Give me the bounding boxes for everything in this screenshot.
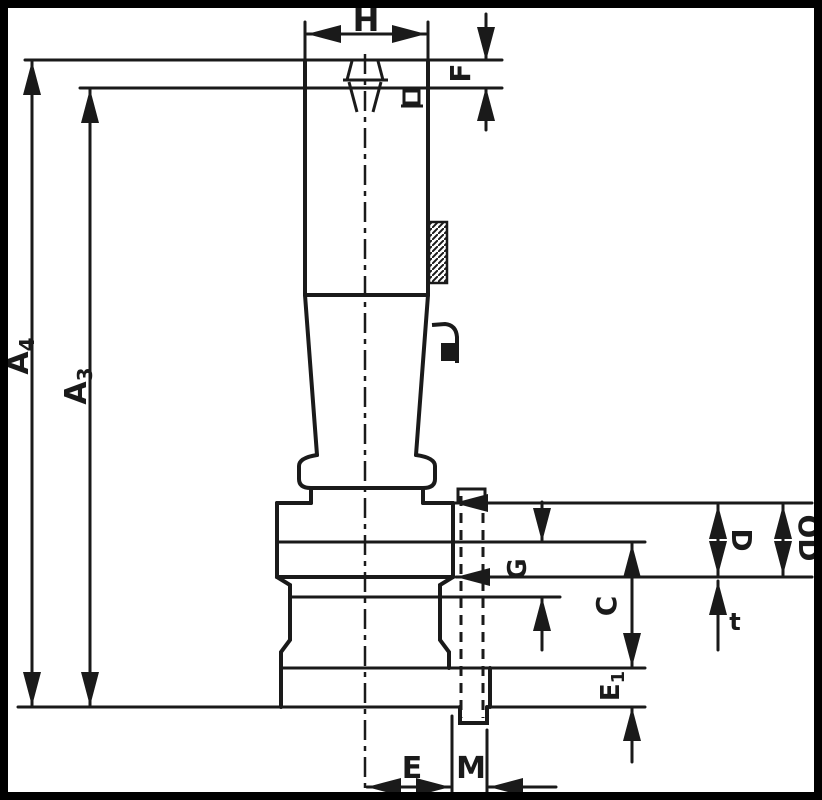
- leader-pilot-top: [454, 494, 812, 512]
- label-f: F: [444, 63, 477, 82]
- dim-a4: [23, 61, 41, 706]
- label-d: D: [725, 528, 758, 551]
- part-outline: [277, 60, 490, 723]
- label-c: C: [590, 596, 623, 617]
- knob-flange: [299, 455, 435, 488]
- serration-patch: [429, 222, 447, 283]
- taper-left-edge: [305, 295, 317, 455]
- latch-hook-detail: [432, 324, 457, 363]
- label-g: G: [503, 558, 533, 579]
- label-a3: A3: [59, 367, 97, 404]
- technical-drawing-page: H F A4 A3 D OD G C t E1 E M: [0, 0, 822, 800]
- dim-c: [623, 544, 641, 667]
- dim-d: [709, 505, 727, 575]
- label-m: M: [456, 751, 486, 786]
- drawing-frame: [4, 4, 818, 796]
- label-e: E: [402, 751, 423, 786]
- top-right-detail-glyph: [401, 91, 423, 106]
- lower-right-profile: [440, 577, 453, 668]
- label-e1: E1: [596, 671, 629, 701]
- extension-lines: [18, 22, 645, 792]
- dim-od: [774, 505, 792, 575]
- taper-right-edge: [416, 295, 428, 455]
- dim-e1: [623, 707, 641, 762]
- label-t: t: [729, 608, 740, 636]
- lower-left-profile: [277, 577, 290, 707]
- dimension-drawing-canvas: H F A4 A3 D OD G C t E1 E M: [0, 0, 822, 800]
- dim-f: [477, 14, 495, 130]
- dim-t: [709, 581, 727, 650]
